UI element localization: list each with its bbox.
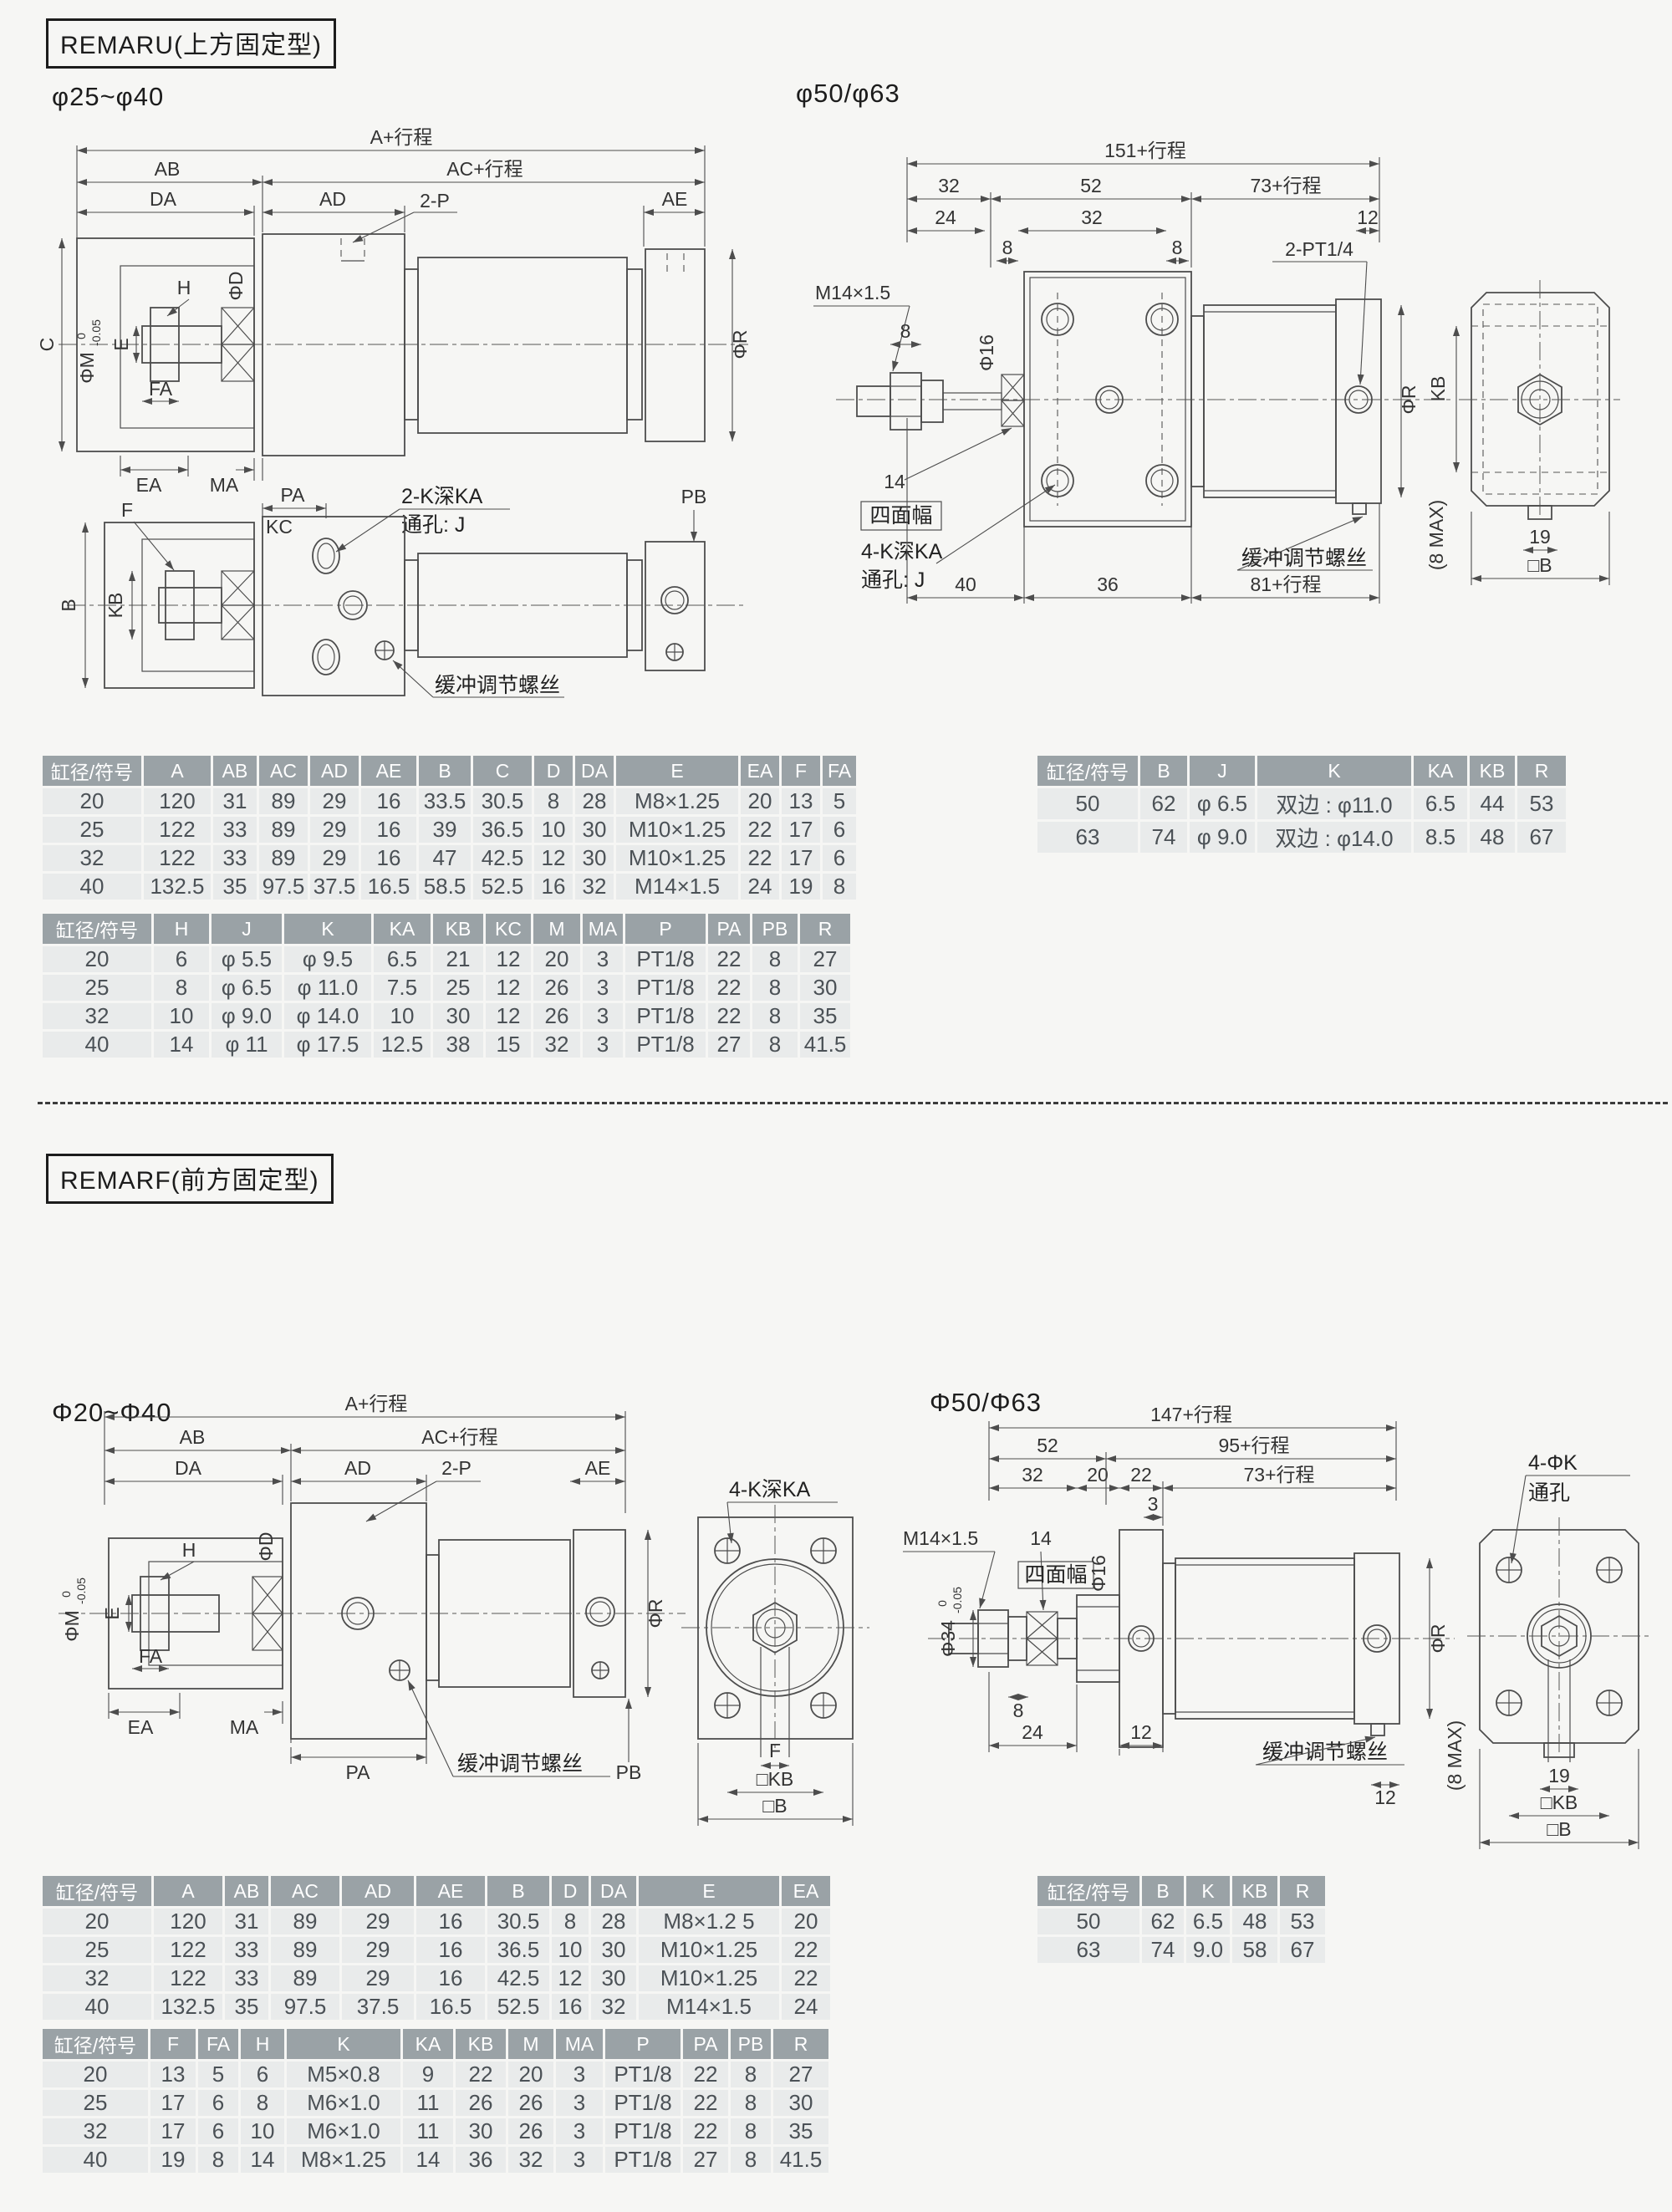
- svg-text:0: 0: [74, 333, 88, 339]
- table-cell: 3: [556, 2118, 603, 2144]
- dim-label: □KB: [757, 1768, 794, 1790]
- table-header-cell: K: [287, 2029, 400, 2059]
- svg-text:-0.05: -0.05: [951, 1587, 964, 1613]
- table-cell: 32: [591, 1994, 636, 2020]
- table-cell: 38: [433, 1032, 483, 1058]
- table-row: 251223389291636.51030M10×1.2522: [43, 1937, 830, 1963]
- table-header-cell: F: [150, 2029, 196, 2059]
- table-row: 251768M6×1.01126263PT1/822830: [43, 2090, 828, 2116]
- dim-label: MA: [210, 474, 239, 496]
- table-cell: 5: [823, 788, 856, 814]
- table-cell: 28: [575, 788, 614, 814]
- cushion-screw-label: 缓冲调节螺丝: [435, 674, 560, 697]
- table-row: 321223389291642.51230M10×1.2522: [43, 1965, 830, 1991]
- table-cell: 32: [43, 1965, 151, 1991]
- dim-label: ΦD: [255, 1532, 277, 1562]
- table-cell: 37.5: [310, 874, 359, 900]
- table-cell: 25: [43, 2090, 148, 2116]
- remaru-large-end-view: KB (8 MAX) 19 □B: [1425, 280, 1620, 585]
- table-cell: 40: [43, 1032, 151, 1058]
- table-cell: 30: [591, 1965, 636, 1991]
- table-cell: φ 11.0: [284, 975, 371, 1001]
- dim-label: 12: [1130, 1721, 1152, 1743]
- table-cell: 50: [1037, 1909, 1139, 1934]
- table-cell: 36.5: [487, 1937, 549, 1963]
- table-cell: 52.5: [473, 874, 532, 900]
- table-header-cell: R: [800, 914, 850, 944]
- table-header-cell: B: [1140, 756, 1187, 786]
- dim-label: 151+行程: [1104, 140, 1186, 161]
- table-header-row: 缸径/符号HJKKAKBKCMMAPPAPBR: [43, 914, 850, 944]
- table-cell: 63: [1037, 822, 1138, 853]
- table-cell: 9.0: [1186, 1937, 1230, 1963]
- rod-seal-hatch: [1027, 1612, 1058, 1665]
- table-cell: 8: [752, 975, 798, 1001]
- table-row: 4019814M8×1.251436323PT1/827841.5: [43, 2147, 828, 2173]
- table-header-cell: F: [782, 756, 820, 786]
- table-header-cell: EA: [741, 756, 779, 786]
- table-row: 25122338929163936.51030M10×1.2522176: [43, 817, 856, 843]
- table-cell: 89: [259, 845, 308, 871]
- table-cell: 20: [43, 946, 151, 972]
- table-header-cell: B: [487, 1876, 549, 1906]
- table-cell: 16: [361, 817, 416, 843]
- table-cell: 132.5: [144, 874, 211, 900]
- table-cell: 36: [456, 2147, 506, 2173]
- table-cell: 10: [534, 817, 573, 843]
- table-header-cell: KC: [486, 914, 531, 944]
- table-cell: 26: [533, 1003, 580, 1029]
- table-cell: 122: [154, 1965, 222, 1991]
- table-row: 40132.53597.537.516.552.51632M14×1.524: [43, 1994, 830, 2020]
- catalog-page: REMARU(上方固定型) φ25~φ40 φ50/φ63 A+行程 AB AC…: [0, 0, 1672, 2212]
- dim-label: A+行程: [370, 126, 433, 148]
- table-cell: M5×0.8: [287, 2062, 400, 2087]
- table-cell: φ 6.5: [1190, 788, 1255, 819]
- table-header-cell: K: [284, 914, 371, 944]
- dim-label: KB: [1427, 376, 1449, 402]
- dim-label: F: [121, 499, 133, 521]
- table-cell: 12: [486, 975, 531, 1001]
- table-cell: 12: [552, 1965, 589, 1991]
- table-cell: 6: [823, 817, 856, 843]
- table-header-cell: PA: [683, 2029, 728, 2059]
- table-cell: φ 17.5: [284, 1032, 371, 1058]
- table-cell: φ 9.0: [1190, 822, 1255, 853]
- dim-label: 2-PT1/4: [1285, 238, 1353, 260]
- table-header-cell: KA: [1414, 756, 1467, 786]
- remaru-dim-table-2: 缸径/符号HJKKAKBKCMMAPPAPBR206φ 5.5φ 9.56.52…: [40, 911, 853, 1060]
- remaru-side-view: A+行程 AB AC+行程 DA AD AE 2-P: [36, 126, 751, 496]
- table-header-cell: PA: [708, 914, 750, 944]
- table-cell: 10: [241, 2118, 284, 2144]
- table-row: 201356M5×0.8922203PT1/822827: [43, 2062, 828, 2087]
- table-row: 63749.05867: [1037, 1937, 1325, 1963]
- dim-label: KC: [266, 516, 293, 538]
- dim-label: B: [58, 599, 79, 611]
- table-cell: 58.5: [419, 874, 471, 900]
- rod-seal-hatch: [1002, 375, 1024, 426]
- table-cell: M10×1.25: [639, 1937, 779, 1963]
- table-header-row: 缸径/符号BJKKAKBR: [1037, 756, 1566, 786]
- dim-label: 24: [1022, 1721, 1043, 1743]
- table-cell: 10: [154, 1003, 209, 1029]
- dim-label: 81+行程: [1250, 573, 1321, 595]
- dim-label: 147+行程: [1150, 1404, 1232, 1425]
- table-cell: PT1/8: [605, 2090, 681, 2116]
- table-cell: 122: [144, 845, 211, 871]
- table-cell: 29: [342, 1965, 414, 1991]
- remaru-bottom-view: PA KC 2-K深KA 通孔: J F: [58, 484, 744, 697]
- dim-label: F: [769, 1740, 781, 1761]
- dim-label: H: [177, 277, 191, 298]
- table-cell: 19: [782, 874, 820, 900]
- table-cell: 35: [225, 1994, 268, 2020]
- table-header-cell: H: [241, 2029, 284, 2059]
- table-header-cell: P: [605, 2029, 681, 2059]
- table-cell: 22: [708, 1003, 750, 1029]
- table-cell: 17: [150, 2090, 196, 2116]
- bore-range-label-large: φ50/φ63: [796, 79, 900, 109]
- table-cell: 8: [823, 874, 856, 900]
- dim-label: AD: [319, 188, 346, 210]
- table-header-cell: E: [639, 1876, 779, 1906]
- dim-label: 52: [1080, 175, 1102, 196]
- dim-label: M14×1.5: [903, 1527, 978, 1549]
- table-header-cell: M: [508, 2029, 553, 2059]
- table-cell: 30: [433, 1003, 483, 1029]
- table-cell: φ 9.5: [284, 946, 371, 972]
- table-cell: 7.5: [374, 975, 431, 1001]
- table-cell: 67: [1517, 822, 1566, 853]
- table-cell: PT1/8: [625, 1003, 706, 1029]
- table-cell: PT1/8: [605, 2062, 681, 2087]
- table-cell: M10×1.25: [616, 817, 738, 843]
- rod-seal-hatch: [222, 571, 254, 640]
- table-cell: 16: [361, 845, 416, 871]
- dim-label: (8 MAX): [1444, 1720, 1466, 1791]
- table-cell: 36.5: [473, 817, 532, 843]
- table-cell: 27: [800, 946, 850, 972]
- dim-label: 52: [1037, 1435, 1058, 1456]
- table-cell: 44: [1470, 788, 1515, 819]
- four-face-width-label: 四面幅: [1018, 1562, 1093, 1588]
- remaru-drawing-large-bore: 151+行程 32 52 73+行程 24 32 12 8 8: [811, 134, 1672, 619]
- dim-label: 14: [1030, 1527, 1052, 1549]
- table-cell: 3: [556, 2090, 603, 2116]
- table-header-cell: A: [144, 756, 211, 786]
- dim-label: AE: [585, 1457, 611, 1479]
- dim-label: 19: [1529, 526, 1551, 548]
- table-cell: 32: [533, 1032, 580, 1058]
- dim-label: Φ16: [976, 334, 997, 371]
- table-header-cell: FA: [198, 2029, 238, 2059]
- table-cell: 58: [1232, 1937, 1277, 1963]
- table-cell: 8: [752, 1032, 798, 1058]
- table-cell: 32: [43, 2118, 148, 2144]
- dim-label: PA: [281, 484, 306, 506]
- table-cell: 42.5: [487, 1965, 549, 1991]
- table-cell: 52.5: [487, 1994, 549, 2020]
- table-cell: 16: [534, 874, 573, 900]
- table-cell: 27: [683, 2147, 728, 2173]
- table-cell: 3: [583, 1032, 623, 1058]
- table-cell: 42.5: [473, 845, 532, 871]
- table-cell: 22: [782, 1965, 830, 1991]
- section-title-remaru: REMARU(上方固定型): [46, 18, 336, 69]
- dim-label: □B: [1527, 554, 1552, 576]
- table-row: 50626.54853: [1037, 1909, 1325, 1934]
- table-header-cell: H: [154, 914, 209, 944]
- table-cell: 22: [683, 2062, 728, 2087]
- remarf-dim-table-2: 缸径/符号FFAHKKAKBMMAPPAPBR201356M5×0.892220…: [40, 2026, 831, 2175]
- table-cell: PT1/8: [605, 2118, 681, 2144]
- table-cell: 3: [583, 975, 623, 1001]
- table-cell: 40: [43, 874, 141, 900]
- table-cell: M8×1.25: [287, 2147, 400, 2173]
- table-cell: 8: [552, 1909, 589, 1934]
- table-cell: 26: [533, 975, 580, 1001]
- table-cell: 16: [552, 1994, 589, 2020]
- dim-label: AB: [180, 1426, 206, 1448]
- dim-label: 14: [884, 471, 905, 492]
- table-cell: 3: [556, 2147, 603, 2173]
- dim-label: 95+行程: [1218, 1435, 1289, 1456]
- table-cell: 89: [259, 817, 308, 843]
- table-cell: 41.5: [800, 1032, 850, 1058]
- table-cell: 5: [198, 2062, 238, 2087]
- table-cell: 25: [43, 817, 141, 843]
- table-cell: 24: [741, 874, 779, 900]
- table-cell: 3: [583, 1003, 623, 1029]
- table-header-cell: KA: [403, 2029, 453, 2059]
- table-cell: 8: [154, 975, 209, 1001]
- table-cell: 9: [403, 2062, 453, 2087]
- remarf-flange-front-view: 4-K深KA F □KB □B: [681, 1478, 869, 1826]
- table-cell: 30.5: [473, 788, 532, 814]
- table-row: 3217610M6×1.01130263PT1/822835: [43, 2118, 828, 2144]
- table-cell: 12: [486, 946, 531, 972]
- table-cell: M6×1.0: [287, 2118, 400, 2144]
- table-header-cell: K: [1257, 756, 1411, 786]
- table-row: 201203189291630.5828M8×1.2 520: [43, 1909, 830, 1934]
- table-header-row: 缸径/符号BKKBR: [1037, 1876, 1325, 1906]
- table-cell: 8: [731, 2118, 771, 2144]
- table-cell: 6: [823, 845, 856, 871]
- table-cell: 48: [1232, 1909, 1277, 1934]
- table-cell: 25: [43, 975, 151, 1001]
- dim-label: 73+行程: [1250, 175, 1321, 196]
- dim-label: 73+行程: [1243, 1464, 1314, 1486]
- dim-label: 8: [900, 320, 911, 342]
- dim-label: FA: [149, 378, 173, 400]
- table-header-cell: PB: [752, 914, 798, 944]
- table-cell: M14×1.5: [639, 1994, 779, 2020]
- table-cell: 120: [154, 1909, 222, 1934]
- dim-label: AD: [344, 1457, 371, 1479]
- table-cell: 35: [800, 1003, 850, 1029]
- dim-label: □B: [762, 1795, 787, 1817]
- cushion-screw-label: 缓冲调节螺丝: [1241, 547, 1367, 570]
- table-header-cell: KB: [1470, 756, 1515, 786]
- table-cell: 35: [213, 874, 257, 900]
- table-cell: 31: [225, 1909, 268, 1934]
- table-cell: 29: [310, 788, 359, 814]
- dim-label: PB: [681, 486, 707, 507]
- dim-label: DA: [150, 188, 177, 210]
- table-header-cell: B: [419, 756, 471, 786]
- table-row: 4014φ 11φ 17.512.53815323PT1/827841.5: [43, 1032, 850, 1058]
- table-cell: 8: [198, 2147, 238, 2173]
- table-row: 258φ 6.5φ 11.07.52512263PT1/822830: [43, 975, 850, 1001]
- table-row: 40132.53597.537.516.558.552.51632M14×1.5…: [43, 874, 856, 900]
- table-header-cell: AC: [259, 756, 308, 786]
- table-cell: PT1/8: [625, 946, 706, 972]
- dimension-table: 缸径/符号AABACADAEBCDDAEEAFFA201203189291633…: [40, 753, 859, 902]
- table-header-cell: FA: [823, 756, 856, 786]
- dim-label: 4-K深KA: [861, 540, 943, 563]
- table-cell: M10×1.25: [616, 845, 738, 871]
- dim-label: 36: [1097, 573, 1119, 595]
- table-cell: M8×1.2 5: [639, 1909, 779, 1934]
- table-cell: 35: [773, 2118, 828, 2144]
- dim-label: □B: [1547, 1818, 1571, 1840]
- table-cell: 32: [575, 874, 614, 900]
- dim-label: 40: [955, 573, 976, 595]
- table-header-cell: AB: [213, 756, 257, 786]
- table-cell: 22: [741, 817, 779, 843]
- dim-label: 32: [938, 175, 960, 196]
- dimension-table: 缸径/符号BKKBR50626.5485363749.05867: [1035, 1873, 1328, 1965]
- table-cell: 31: [213, 788, 257, 814]
- table-cell: 97.5: [259, 874, 308, 900]
- dim-label: DA: [175, 1457, 202, 1479]
- table-cell: 27: [773, 2062, 828, 2087]
- remarf-side-view: A+行程 AB AC+行程 DA AD AE 2-P: [59, 1393, 686, 1783]
- table-cell: 20: [533, 946, 580, 972]
- table-cell: 37.5: [342, 1994, 414, 2020]
- table-header-cell: AE: [416, 1876, 485, 1906]
- table-cell: 41.5: [773, 2147, 828, 2173]
- table-cell: 6.5: [374, 946, 431, 972]
- table-cell: 双边 : φ14.0: [1257, 822, 1411, 853]
- table-cell: 30: [575, 845, 614, 871]
- dim-label: 22: [1130, 1464, 1152, 1486]
- svg-text:-0.05: -0.05: [74, 1577, 88, 1604]
- dim-label: 12: [1357, 206, 1379, 228]
- table-header-cell: B: [1142, 1876, 1184, 1906]
- svg-text:0: 0: [59, 1591, 73, 1598]
- table-cell: 26: [456, 2090, 506, 2116]
- table-cell: 47: [419, 845, 471, 871]
- table-header-cell: KB: [433, 914, 483, 944]
- table-cell: 40: [43, 2147, 148, 2173]
- table-cell: 30: [773, 2090, 828, 2116]
- cushion-screw-label: 缓冲调节螺丝: [1262, 1741, 1388, 1764]
- table-cell: 8: [241, 2090, 284, 2116]
- dim-label: EA: [136, 474, 162, 496]
- table-cell: 33: [225, 1965, 268, 1991]
- table-cell: M10×1.25: [639, 1965, 779, 1991]
- table-cell: 3: [556, 2062, 603, 2087]
- table-header-cell: 缸径/符号: [1037, 756, 1138, 786]
- table-cell: 25: [433, 975, 483, 1001]
- table-cell: 40: [43, 1994, 151, 2020]
- dim-label-tolerance: Φ34 0 -0.05: [935, 1587, 964, 1657]
- table-cell: 53: [1517, 788, 1566, 819]
- dim-label: AE: [662, 188, 688, 210]
- table-header-cell: AD: [310, 756, 359, 786]
- table-header-cell: KB: [456, 2029, 506, 2059]
- table-cell: 14: [154, 1032, 209, 1058]
- dim-label: 32: [1022, 1464, 1043, 1486]
- dim-label: 19: [1548, 1765, 1570, 1786]
- table-cell: 74: [1140, 822, 1187, 853]
- dim-label: 2-K深KA: [401, 485, 483, 508]
- table-cell: φ 5.5: [212, 946, 282, 972]
- table-cell: 12: [486, 1003, 531, 1029]
- dim-label: A+行程: [345, 1393, 408, 1414]
- dim-label: 24: [935, 206, 956, 228]
- table-cell: 14: [403, 2147, 453, 2173]
- table-cell: 32: [43, 845, 141, 871]
- table-cell: 6.5: [1414, 788, 1467, 819]
- dim-label: PB: [616, 1761, 642, 1783]
- svg-text:ΦM: ΦM: [61, 1610, 83, 1642]
- table-header-cell: R: [773, 2029, 828, 2059]
- remarf-drawing-small-bore: A+行程 AB AC+行程 DA AD AE 2-P: [25, 1379, 886, 1848]
- table-cell: 6: [154, 946, 209, 972]
- table-cell: 32: [508, 2147, 553, 2173]
- table-header-cell: 缸径/符号: [43, 914, 151, 944]
- table-cell: M14×1.5: [616, 874, 738, 900]
- table-cell: 14: [241, 2147, 284, 2173]
- table-cell: 3: [583, 946, 623, 972]
- dim-label: ΦR: [1427, 1624, 1449, 1654]
- table-cell: 6: [198, 2118, 238, 2144]
- table-cell: 20: [782, 1909, 830, 1934]
- cushion-screw-label: 缓冲调节螺丝: [457, 1752, 583, 1776]
- table-cell: 12.5: [374, 1032, 431, 1058]
- table-cell: PT1/8: [625, 1032, 706, 1058]
- table-cell: 22: [782, 1937, 830, 1963]
- table-cell: 30: [800, 975, 850, 1001]
- table-cell: φ 6.5: [212, 975, 282, 1001]
- table-cell: 8: [752, 946, 798, 972]
- table-header-cell: R: [1517, 756, 1566, 786]
- svg-text:Φ34: Φ34: [937, 1620, 959, 1657]
- table-cell: 16: [361, 788, 416, 814]
- dimension-table: 缸径/符号AABACADAEBDDAEEA201203189291630.582…: [40, 1873, 833, 2022]
- table-header-cell: AB: [225, 1876, 268, 1906]
- table-cell: 33: [213, 817, 257, 843]
- table-cell: 30: [575, 817, 614, 843]
- table-cell: 53: [1280, 1909, 1325, 1934]
- dim-label: ΦD: [225, 272, 247, 301]
- table-cell: 11: [403, 2118, 453, 2144]
- dim-label: MA: [230, 1716, 259, 1738]
- dim-label: AC+行程: [421, 1426, 497, 1448]
- dim-label: EA: [128, 1716, 154, 1738]
- remarf-dim-table-large-bore: 缸径/符号BKKBR50626.5485363749.05867: [1035, 1873, 1328, 1965]
- table-cell: 30.5: [487, 1909, 549, 1934]
- table-cell: 20: [43, 1909, 151, 1934]
- table-cell: 62: [1142, 1909, 1184, 1934]
- table-cell: 132.5: [154, 1994, 222, 2020]
- table-cell: 89: [259, 788, 308, 814]
- remarf-large-side-view: 147+行程 52 95+行程 32 20 22 73+行程 3: [903, 1404, 1455, 1808]
- table-cell: φ 9.0: [212, 1003, 282, 1029]
